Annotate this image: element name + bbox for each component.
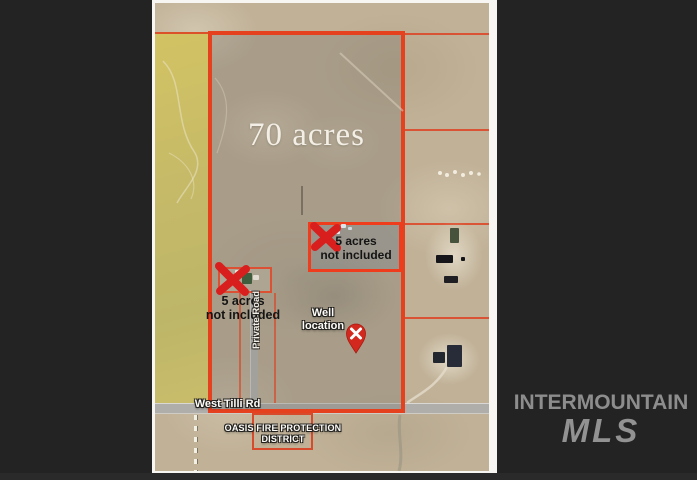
photo-bottom-edge [0,473,697,480]
exclusion-left-line1: 5 acres [193,294,293,308]
x-mark-icon [219,266,246,292]
trail-path [163,61,198,203]
trail-path [169,153,194,199]
fire-district-line1: OASIS FIRE PROTECTION [218,423,348,434]
well-label-line2: location [290,320,356,333]
trail-path [399,415,401,471]
fire-district-line2: DISTRICT [218,434,348,445]
white-rocks [438,170,481,177]
exclusion-upper-line2: not included [310,248,402,262]
exclusion-left-label: 5 acres not included [193,294,293,322]
well-location-label: Well location [290,307,356,333]
acreage-label: 70 acres [208,117,405,154]
exclusion-left-line2: not included [193,308,293,322]
mls-watermark: INTERMOUNTAIN MLS [505,391,697,450]
trail-path [340,53,403,111]
exclusion-upper-line1: 5 acres [310,234,402,248]
fire-district-label: OASIS FIRE PROTECTION DISTRICT [218,423,348,445]
listing-photo: 70 acres 5 acres not included 5 acres no… [152,0,497,473]
aerial-map: 70 acres 5 acres not included 5 acres no… [155,3,489,471]
watermark-line2: MLS [505,412,697,450]
well-label-line1: Well [290,307,356,320]
road-name-label: West Tilli Rd [175,398,280,410]
exclusion-upper-label: 5 acres not included [310,234,402,262]
driveway-path [407,367,447,403]
